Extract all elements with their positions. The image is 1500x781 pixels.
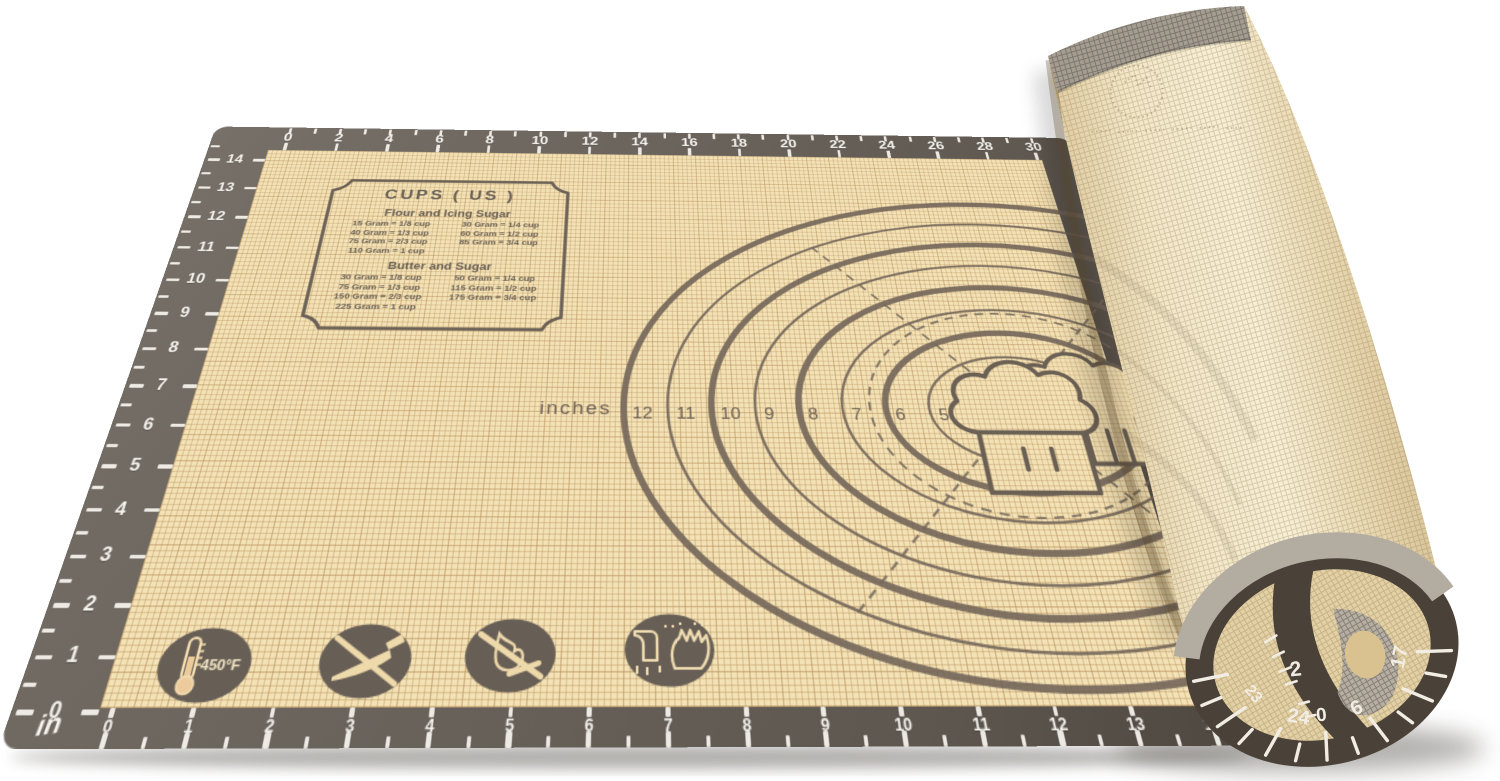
rolled-mat: 2324617 20 xyxy=(0,0,1500,781)
cap-spiral-number: 2 xyxy=(1289,657,1303,681)
cap-rim-number: 17 xyxy=(1387,644,1413,670)
product-photo-scene: 12111098765 inches 450°F xyxy=(0,0,1500,781)
cap-spiral-number: 0 xyxy=(1315,705,1328,727)
